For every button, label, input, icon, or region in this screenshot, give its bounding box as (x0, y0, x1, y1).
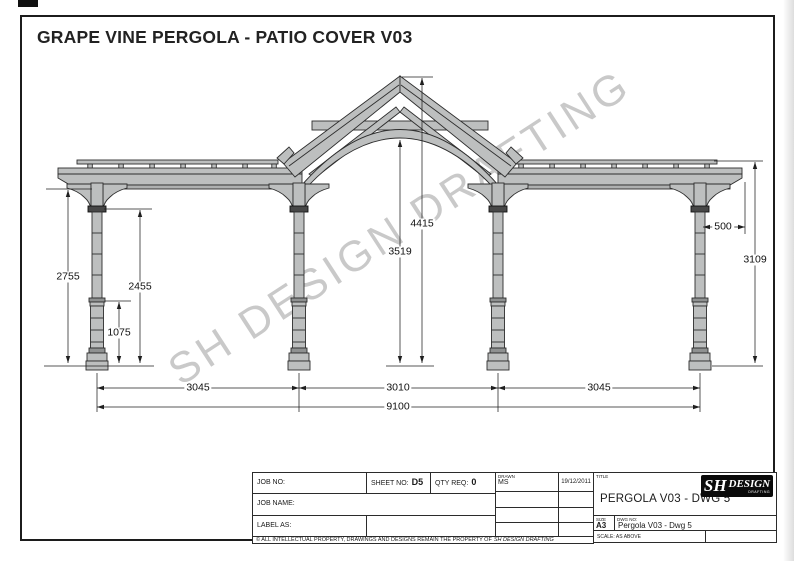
empty-cell (558, 491, 594, 508)
scan-corner-mark (18, 0, 38, 7)
dim-arch-underside: 3519 (386, 247, 413, 258)
empty-cell (495, 491, 559, 508)
drawn-value: MS (496, 479, 558, 486)
copyright-text: © ALL INTELLECTUAL PROPERTY, DRAWINGS AN… (256, 537, 492, 543)
column-2 (269, 183, 329, 370)
job-name-cell: JOB NAME: (252, 493, 496, 516)
size-value: A3 (594, 522, 614, 530)
dim-capital-height: 2455 (126, 282, 153, 293)
drawn-cell: DRAWN MS (495, 472, 559, 492)
dim-bay-right: 3045 (585, 383, 612, 394)
copyright-strip: © ALL INTELLECTUAL PROPERTY, DRAWINGS AN… (252, 536, 594, 544)
dim-bay-center: 3010 (384, 383, 411, 394)
date-cell: 19/12/2011 (558, 472, 594, 492)
sheet-no-value: D5 (412, 477, 424, 487)
job-no-label: JOB NO: (257, 479, 285, 486)
dim-side-height-right: 3109 (741, 255, 768, 266)
dim-overhang: 500 (712, 222, 734, 233)
label-as-cell: LABEL AS: (252, 515, 367, 538)
logo-subtitle: DRAFTING (748, 490, 770, 494)
sheet-no-label: SHEET NO: (371, 480, 409, 487)
scale-cell: SCALE: AS ABOVE (593, 530, 706, 543)
qty-req-cell: QTY REQ:0 (430, 472, 496, 494)
logo-monogram: SH (704, 476, 727, 496)
empty-cell (705, 530, 777, 543)
qty-req-value: 0 (471, 477, 476, 487)
dwg-no-value: Pergola V03 - Dwg 5 (615, 522, 776, 530)
copyright-company: SH DESIGN DRAFTING (494, 537, 554, 543)
empty-cell (558, 507, 594, 523)
dwg-no-cell: DWG NO: Pergola V03 - Dwg 5 (614, 515, 777, 531)
empty-cell (366, 515, 496, 538)
label-as-label: LABEL AS: (257, 522, 291, 529)
qty-req-label: QTY REQ: (435, 480, 468, 487)
company-logo: SH DESIGN DRAFTING (701, 475, 773, 497)
column-3 (468, 183, 528, 370)
dim-peak-height: 4415 (408, 219, 435, 230)
job-name-label: JOB NAME: (257, 500, 295, 507)
column-4 (670, 183, 730, 370)
sheet-no-cell: SHEET NO:D5 (366, 472, 431, 494)
page-edge-shadow (783, 0, 794, 561)
dim-beam-underside-left: 2755 (54, 272, 81, 283)
dim-bay-left: 3045 (184, 383, 211, 394)
logo-name: DESIGN (729, 479, 771, 490)
page: { "page": { "title": "GRAPE VINE PERGOLA… (0, 0, 794, 561)
page-title: GRAPE VINE PERGOLA - PATIO COVER V03 (37, 27, 412, 48)
scale-label: SCALE: (597, 534, 615, 540)
size-cell: SIZE A3 (593, 515, 615, 531)
dim-total-width: 9100 (384, 402, 411, 413)
scale-value: AS ABOVE (616, 534, 641, 540)
job-no-cell: JOB NO: (252, 472, 367, 494)
empty-cell (495, 507, 559, 523)
dim-lower-shaft: 1075 (105, 328, 132, 339)
title-cell: TITLE PERGOLA V03 - DWG 5 SH DESIGN DRAF… (593, 472, 777, 516)
